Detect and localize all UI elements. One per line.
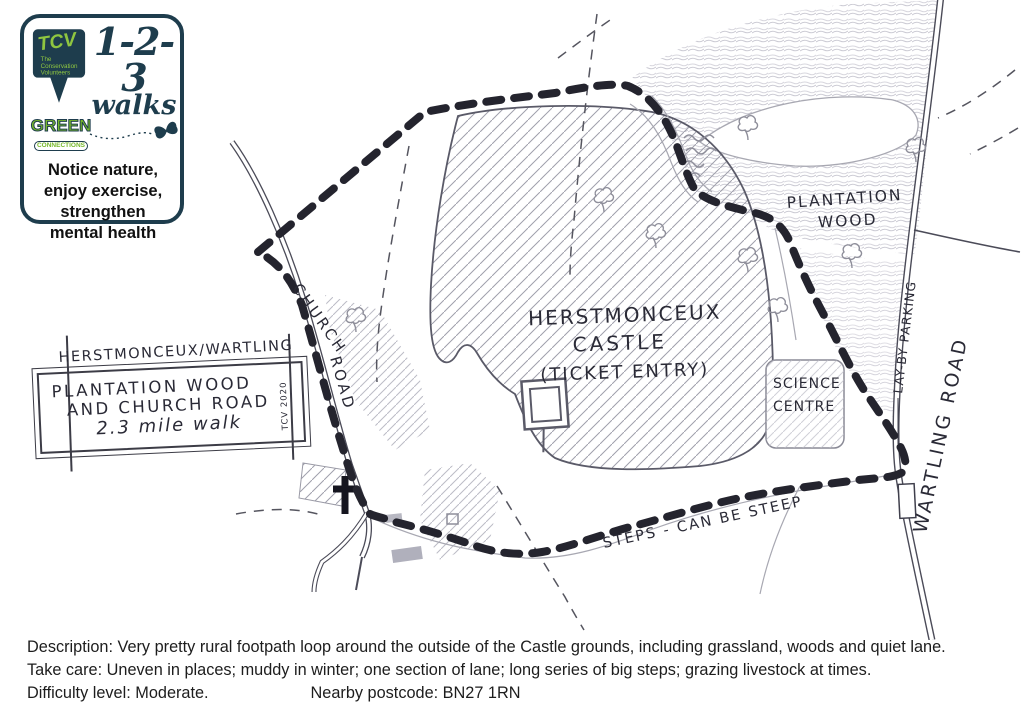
wartling-label: WARTLING ROAD: [909, 335, 972, 535]
plantation-label-2: WOOD: [817, 210, 878, 231]
building: [391, 546, 423, 563]
difficulty-label: Difficulty level: Moderate.: [27, 682, 306, 705]
walk-title-sign: HERSTMONCEUX/WARTLING PLANTATION WOOD AN…: [36, 339, 305, 452]
tcv-logo-card: TCV The Conservation Volunteers GREEN CO…: [20, 14, 184, 224]
butterfly-trail: [88, 118, 180, 144]
science-label-2: CENTRE: [773, 399, 835, 415]
science-label-1: SCIENCE: [773, 376, 841, 392]
tagline-line: Notice nature,: [30, 160, 176, 181]
green-connections-badge: GREEN CONNECTIONS: [30, 117, 92, 152]
walks-label: walks: [88, 94, 180, 118]
sign-box: PLANTATION WOOD AND CHURCH ROAD 2.3 mile…: [37, 361, 306, 454]
logo-tagline: Notice nature, enjoy exercise, strengthe…: [30, 160, 176, 244]
green-label: GREEN: [30, 117, 92, 134]
walk-info-text: Description: Very pretty rural footpath …: [27, 636, 1007, 705]
difficulty-line: Difficulty level: Moderate. Nearby postc…: [27, 682, 1007, 705]
walk-leaflet: CHURCH ROAD HERSTMONCEUX CASTLE (TICKET …: [0, 0, 1024, 723]
church-building: [299, 463, 346, 506]
description-line: Description: Very pretty rural footpath …: [27, 636, 1007, 659]
take-care-line: Take care: Uneven in places; muddy in wi…: [27, 659, 1007, 682]
tcv-pin-logo: TCV The Conservation Volunteers: [30, 24, 88, 110]
road-branch: [914, 230, 1020, 252]
tagline-line: enjoy exercise,: [30, 181, 176, 202]
tagline-line: mental health: [30, 223, 176, 244]
butterfly-icon: [153, 121, 178, 140]
castle-grounds: [430, 106, 773, 469]
connections-label: CONNECTIONS: [34, 141, 88, 151]
castle-label-2: CASTLE: [572, 329, 667, 356]
sign-credit: TCV 2020: [279, 381, 291, 430]
bottom-hatch: [420, 463, 500, 560]
tagline-line: strengthen: [30, 202, 176, 223]
one-two-three-label: 1-2-3: [88, 24, 180, 96]
postcode-label: Nearby postcode: BN27 1RN: [311, 684, 521, 702]
tcv-sub-3: Volunteers: [41, 70, 71, 77]
